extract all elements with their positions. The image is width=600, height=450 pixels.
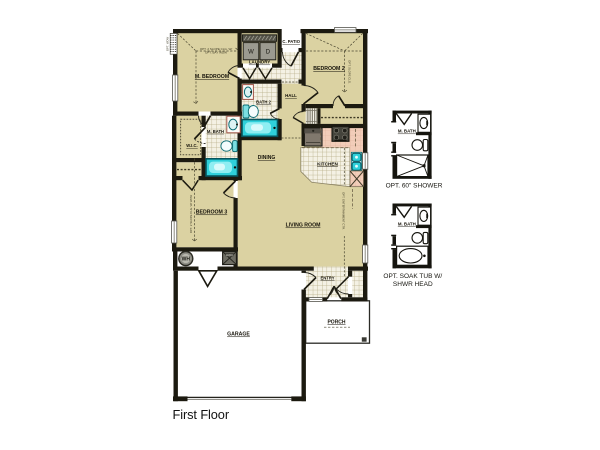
svg-text:LIVING ROOM: LIVING ROOM (286, 223, 321, 229)
svg-text:W: W (248, 49, 254, 55)
svg-text:HALL: HALL (285, 93, 297, 98)
svg-text:BATH 2: BATH 2 (256, 99, 271, 104)
svg-text:KITCHEN: KITCHEN (317, 162, 338, 167)
svg-text:GARAGE: GARAGE (227, 332, 250, 338)
svg-text:OPT. 60" SHOWER: OPT. 60" SHOWER (386, 183, 443, 190)
svg-text:OPT. ENTERTAINMENT CTR.: OPT. ENTERTAINMENT CTR. (341, 192, 345, 230)
svg-text:OPT. BAY WDW: OPT. BAY WDW (205, 50, 227, 54)
svg-text:OPT. 2 SLOPE CLG. W/ WDW: OPT. 2 SLOPE CLG. W/ WDW (189, 195, 193, 234)
svg-text:M. BATH: M. BATH (398, 129, 416, 134)
svg-text:SHWR HEAD: SHWR HEAD (393, 281, 433, 288)
svg-text:BEDROOM 2: BEDROOM 2 (313, 66, 345, 72)
svg-text:First Floor: First Floor (173, 407, 230, 422)
svg-text:WH: WH (182, 257, 191, 263)
svg-text:D: D (266, 49, 271, 55)
svg-text:PORCH: PORCH (327, 319, 345, 325)
svg-text:W.I.C.: W.I.C. (186, 143, 197, 148)
svg-text:OPT. WDW: OPT. WDW (166, 36, 170, 51)
svg-text:BEDROOM 3: BEDROOM 3 (196, 210, 228, 216)
svg-text:M. BATH: M. BATH (398, 222, 416, 227)
svg-text:HVAC: HVAC (226, 253, 233, 257)
svg-text:M. BEDROOM: M. BEDROOM (195, 74, 229, 80)
svg-text:OPT. SOAK TUB W/: OPT. SOAK TUB W/ (383, 273, 442, 280)
svg-text:ENTRY: ENTRY (320, 275, 334, 280)
svg-text:DINING: DINING (258, 155, 276, 161)
svg-text:M. BATH: M. BATH (207, 129, 224, 134)
svg-text:OPT. SLOPE CLG.: OPT. SLOPE CLG. (348, 60, 352, 84)
svg-text:C. PATIO: C. PATIO (282, 39, 300, 44)
svg-text:LAUNDRY: LAUNDRY (249, 60, 270, 65)
